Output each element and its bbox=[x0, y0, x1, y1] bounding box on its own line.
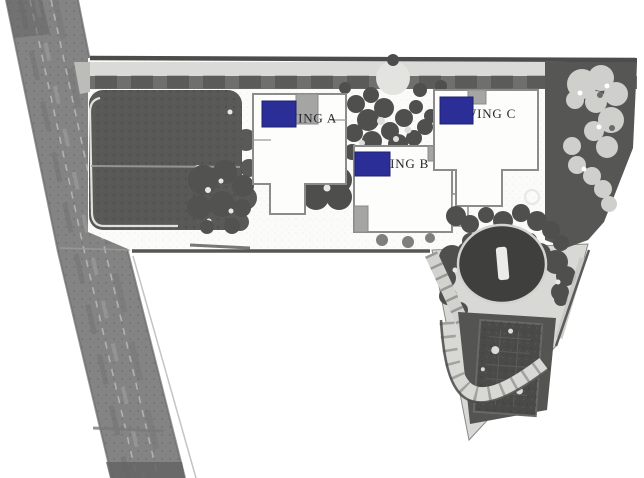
site-plan-canvas: WING A WING B WING C bbox=[0, 0, 644, 478]
wing-c-marker[interactable] bbox=[440, 97, 473, 124]
entrance-plaza bbox=[376, 61, 410, 95]
site-plan: WING A WING B WING C bbox=[0, 0, 644, 478]
entrance-feature bbox=[387, 54, 399, 66]
wing-b-marker[interactable] bbox=[355, 152, 390, 176]
south-extension bbox=[431, 225, 589, 424]
road-bottom-band bbox=[106, 462, 185, 478]
wing-a-marker[interactable] bbox=[262, 101, 296, 127]
top-boundary-line bbox=[90, 58, 637, 60]
right-garden bbox=[545, 62, 637, 248]
